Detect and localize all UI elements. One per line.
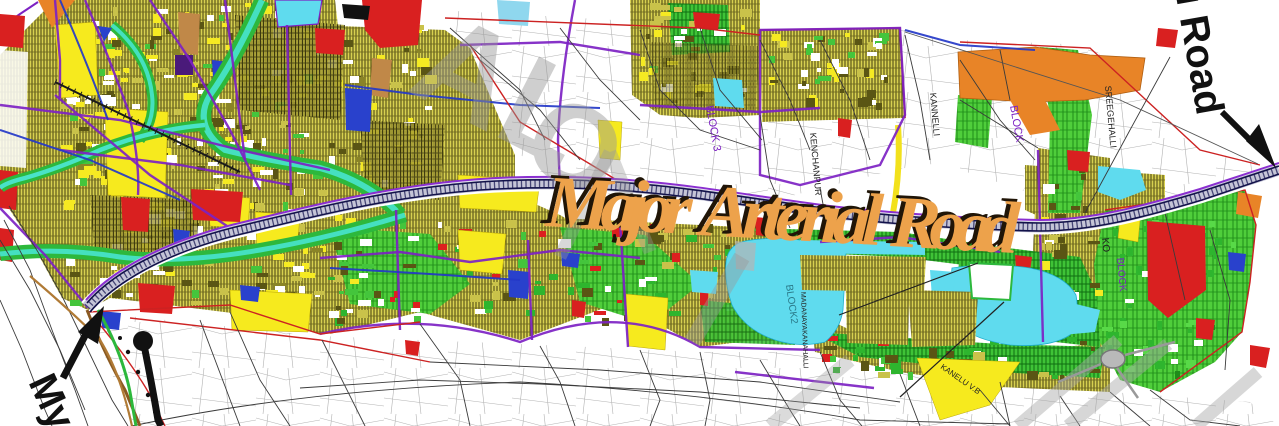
svg-text:Major: Major xyxy=(543,161,696,251)
svg-text:Arterial: Arterial xyxy=(695,170,886,262)
svg-text:KO: KO xyxy=(1099,237,1111,253)
svg-text:Road: Road xyxy=(888,181,1022,270)
